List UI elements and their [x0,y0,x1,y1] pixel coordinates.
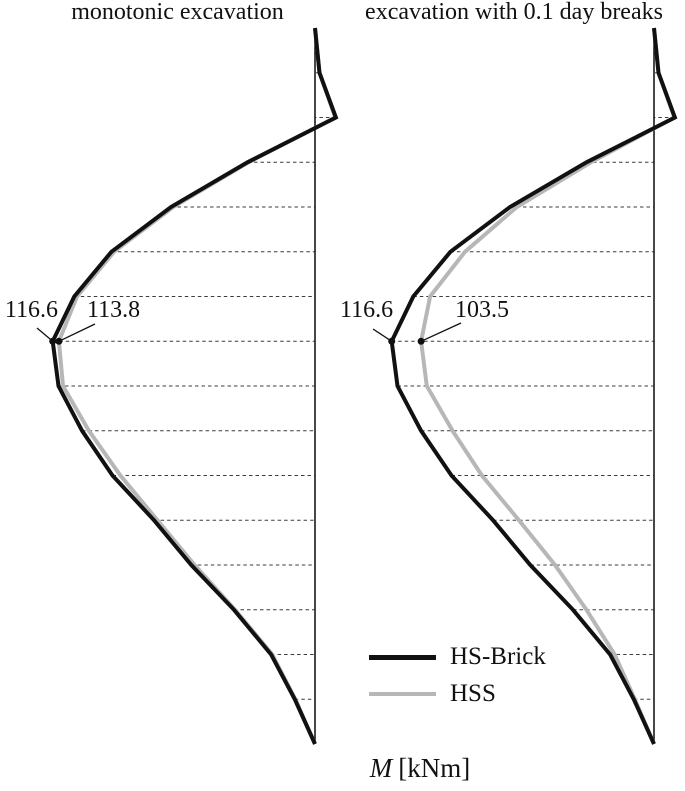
legend-item-hss: HSS [369,679,546,709]
peak-annotation-right-hs-brick: 116.6 [340,297,393,323]
x-axis-label-units: [kNm] [398,753,470,783]
legend-label-hss: HSS [450,679,496,709]
legend: HS-Brick HSS [369,642,546,709]
moment-diagram-figure: monotonic excavation excavation with 0.1… [0,0,685,791]
hss-line-sample [369,692,436,696]
moment-profiles-canvas [0,0,685,760]
peak-annotation-right-hss: 103.5 [455,297,509,323]
annotation-leader-line [421,323,461,341]
x-axis-label-symbol: M [370,753,399,783]
peak-annotation-left-hs-brick: 116.6 [0,297,58,323]
peak-marker-dot [49,338,56,345]
legend-item-hs-brick: HS-Brick [369,642,546,672]
legend-label-hs-brick: HS-Brick [450,642,546,672]
peak-marker-dot [388,338,395,345]
x-axis-label: M[kNm] [320,753,520,784]
peak-annotation-left-hss: 113.8 [87,297,140,323]
peak-marker-dot [418,338,425,345]
hs-brick-line-sample [369,655,436,660]
peak-marker-dot [55,338,62,345]
